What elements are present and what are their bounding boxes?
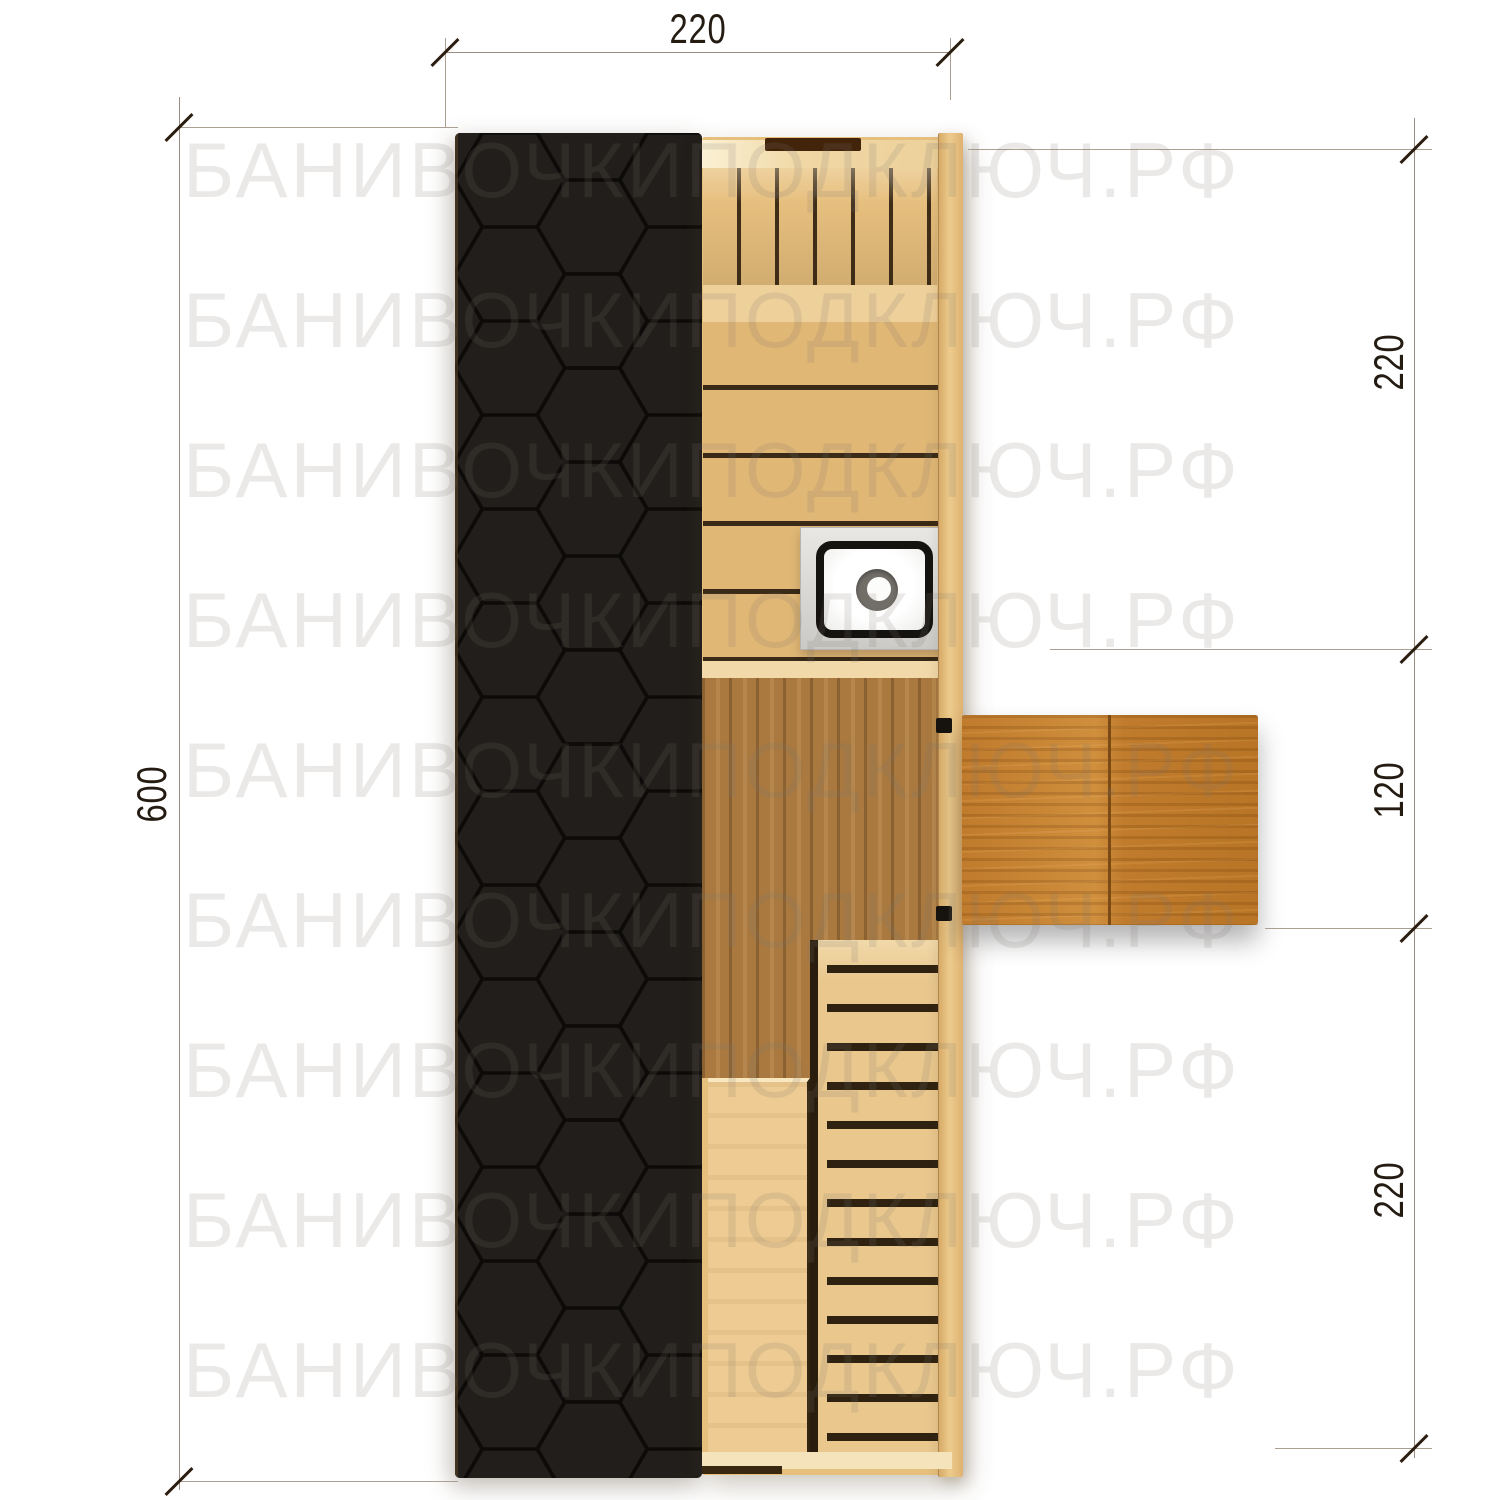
dim-left-ext-top — [179, 127, 458, 128]
sauna-bench-edge — [703, 285, 937, 325]
door-hinge-bottom — [936, 906, 952, 921]
dim-right-ext-3 — [1265, 928, 1432, 929]
chimney-pipe-core — [867, 577, 891, 601]
deck-separator — [810, 940, 818, 1454]
dim-right-label-1: 220 — [1365, 315, 1413, 409]
sauna-bench-shading — [703, 168, 937, 285]
dim-right-ext-4 — [1275, 1448, 1432, 1449]
dim-left-label: 600 — [128, 747, 176, 841]
sauna-floor-plan-canvas: 220 600 220 120 220 БАНИВОЧКИПОДКЛЮЧ.РФ … — [0, 0, 1500, 1500]
right-wall-plank — [938, 133, 963, 1477]
bottom-wall-bar — [702, 1466, 782, 1474]
dim-right-label-2: 120 — [1365, 743, 1413, 837]
dim-right-ext-2 — [1050, 649, 1432, 650]
middle-room-floor-lower — [702, 950, 810, 1078]
middle-room-floor — [702, 678, 942, 950]
roof-hex-pattern — [455, 133, 702, 1478]
dim-left-ext-bottom — [179, 1481, 458, 1482]
top-vent-bar — [765, 138, 861, 151]
roof-covered-section — [455, 133, 702, 1478]
dim-top-ext-right — [950, 38, 951, 100]
dim-right-ext-1 — [968, 149, 1432, 150]
dim-right-label-3: 220 — [1365, 1143, 1413, 1237]
door-hinge-top — [936, 718, 952, 733]
duckboard-slats — [827, 965, 947, 1448]
dim-top-label: 220 — [651, 5, 745, 53]
bottom-room-bench — [708, 1078, 810, 1454]
dim-left-line — [179, 97, 180, 1490]
open-door-seam — [1108, 715, 1111, 925]
dim-right-line — [1414, 118, 1415, 1458]
